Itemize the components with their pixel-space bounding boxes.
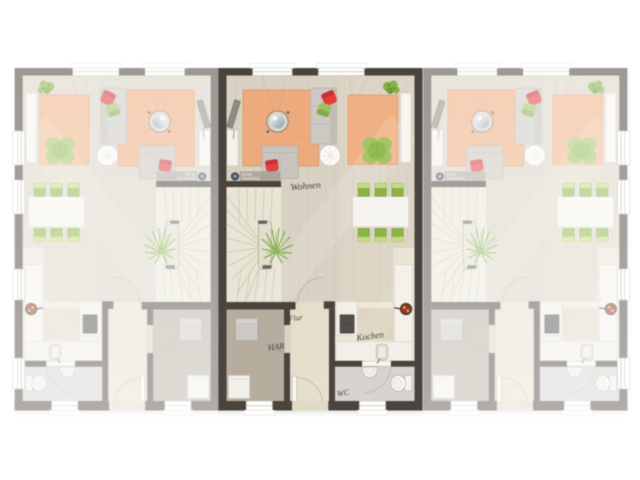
svg-text:Flur: Flur [287,313,304,324]
svg-text:Zubereitung: Zubereitung [242,176,260,180]
svg-text:WC: WC [337,388,351,399]
